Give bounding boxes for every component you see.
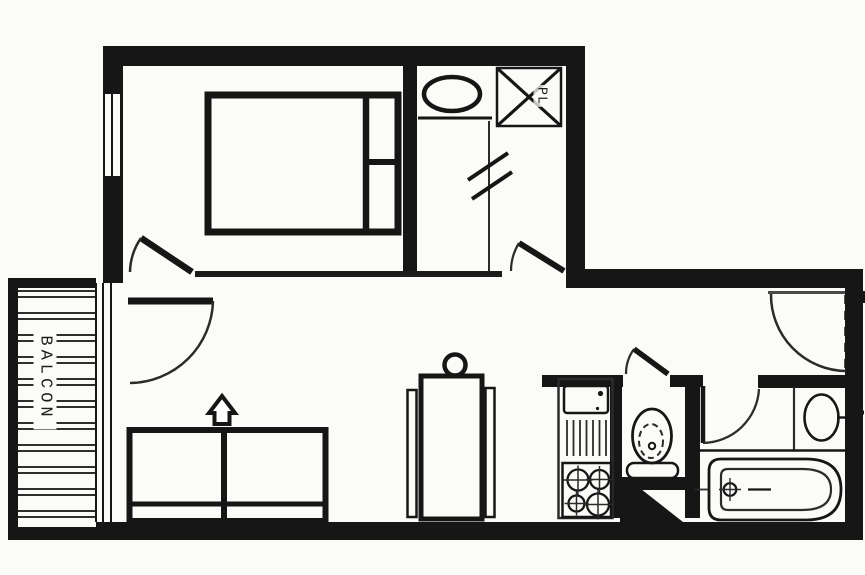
wc-door-swing-icon [626,349,634,374]
closet-cross-icon [497,68,561,126]
closet-label: PL [534,85,549,107]
bedroom-door-swing-icon [130,238,141,272]
sink-faucet-dot [598,391,603,396]
sofa-bed-icon [130,430,326,521]
table-bench-left-icon [408,390,417,517]
toilet-drain-dot [649,443,655,449]
sink-drain-dot [596,407,599,410]
dressing-washbasin-icon [424,77,480,111]
entrance-door-swing-icon [771,294,846,371]
stove-burner-4-cross [583,490,613,520]
dressing-door-leaf-icon [519,243,564,271]
bathroom-door-swing-icon [703,389,759,443]
dining-table-icon [421,376,482,519]
stove-burner-3-cross [565,492,589,516]
bedroom-door-leaf-icon [141,238,192,272]
stove-burner-2-cross [586,466,613,493]
toilet-base-icon [627,463,678,478]
fixtures-layer [0,0,865,575]
table-end-stool-icon [445,355,466,376]
kitchen-vent-lines-icon [567,420,606,456]
toilet-bowl-icon [633,409,672,463]
balcony-door-swing-icon [130,301,213,383]
kitchen-sink-icon [564,386,608,413]
table-bench-right-icon [486,388,495,517]
floor-plan-scan: BALCON [0,0,865,575]
dressing-door-swing-icon [511,243,519,271]
bathroom-washbasin-icon [805,395,839,441]
partition-slash-1 [472,172,512,199]
fold-out-arrow-icon [209,396,235,424]
wc-door-leaf-icon [634,349,668,374]
wc-floor-wedge [620,489,683,522]
